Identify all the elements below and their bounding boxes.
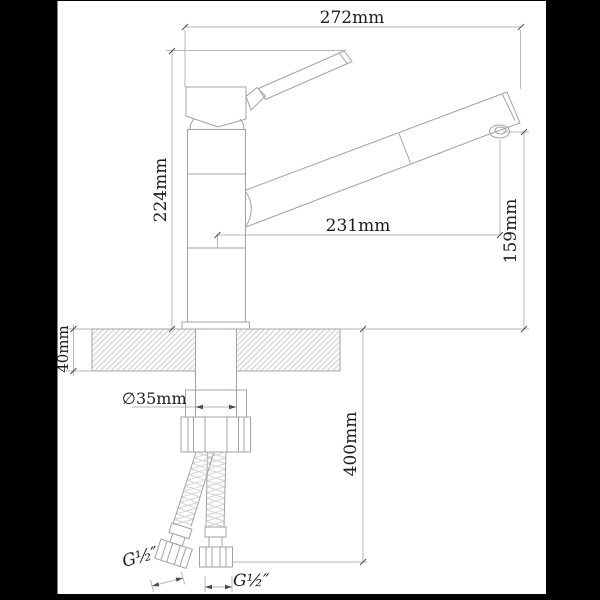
faucet-technical-drawing: 272mm 224mm 231mm 159mm 40mm ∅35mm 400mm… bbox=[0, 0, 600, 600]
dim-272-label: 272mm bbox=[320, 8, 385, 28]
dim-159-label: 159mm bbox=[501, 199, 521, 264]
drawing-sheet bbox=[58, 1, 547, 594]
dim-224-label: 224mm bbox=[151, 158, 171, 223]
dim-400-label: 400mm bbox=[341, 412, 361, 477]
dim-35-label: ∅35mm bbox=[122, 389, 187, 408]
image-viewer-background: 272mm 224mm 231mm 159mm 40mm ∅35mm 400mm… bbox=[0, 0, 600, 600]
thread-right-label: G½″ bbox=[233, 571, 270, 591]
dim-40-label: 40mm bbox=[54, 325, 72, 373]
dim-231-label: 231mm bbox=[326, 216, 391, 236]
